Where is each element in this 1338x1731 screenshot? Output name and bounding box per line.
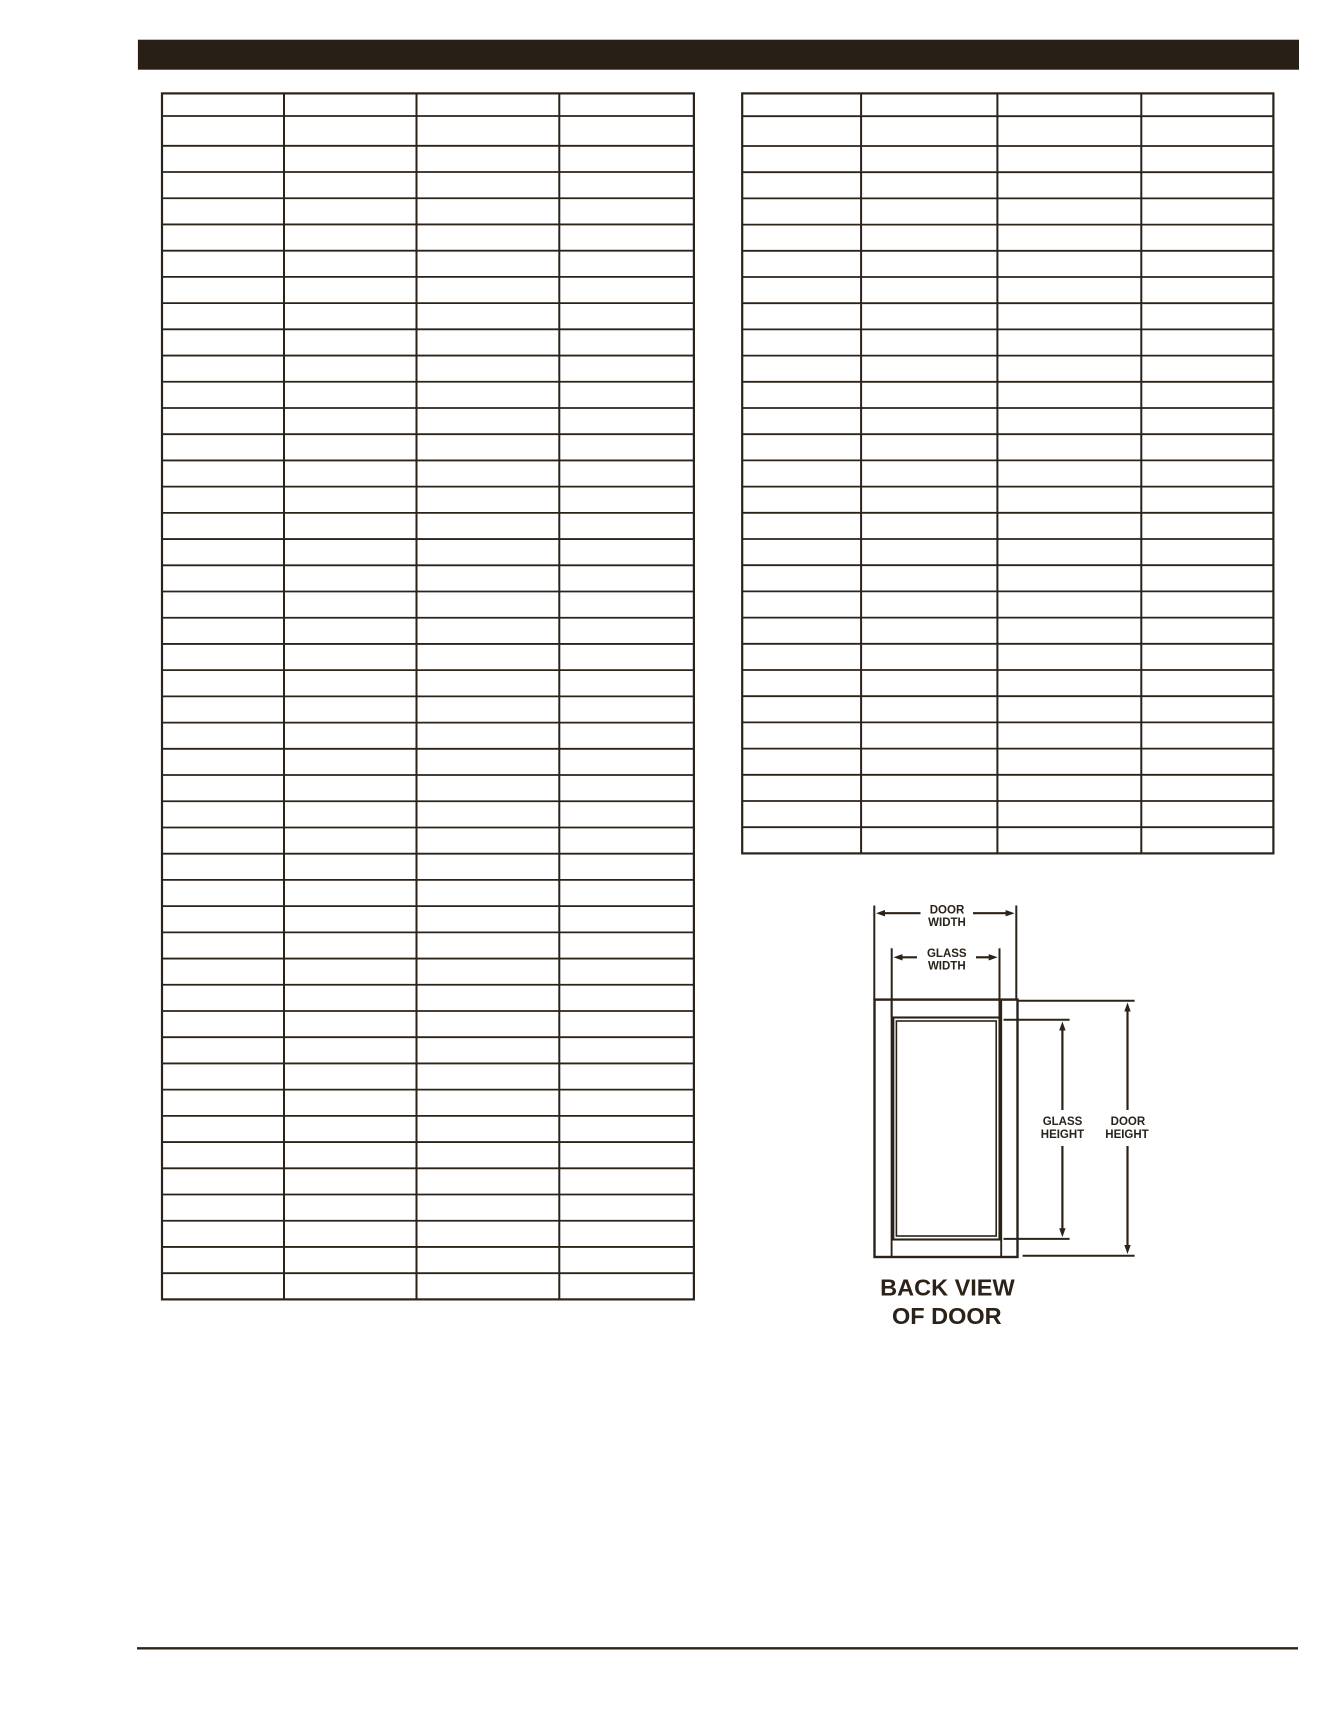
svg-text:HEIGHT: HEIGHT: [1105, 1129, 1148, 1141]
svg-text:GLASS: GLASS: [927, 948, 967, 960]
svg-text:HEIGHT: HEIGHT: [1041, 1129, 1084, 1141]
svg-text:GLASS: GLASS: [1043, 1116, 1083, 1128]
svg-text:DOOR: DOOR: [1111, 1116, 1146, 1128]
svg-text:BACK VIEW: BACK VIEW: [880, 1275, 1015, 1301]
svg-text:DOOR: DOOR: [930, 905, 965, 917]
svg-text:OF DOOR: OF DOOR: [892, 1303, 1002, 1329]
svg-text:WIDTH: WIDTH: [928, 917, 966, 929]
svg-text:WIDTH: WIDTH: [928, 961, 966, 973]
